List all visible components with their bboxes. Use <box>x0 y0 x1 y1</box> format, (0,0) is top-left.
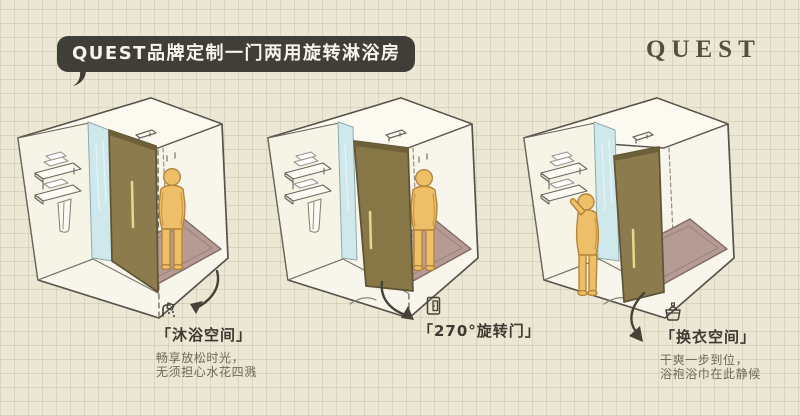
bathing-label-group: 「沐浴空间」 畅享放松时光， 无须担心水花四溅 <box>156 300 257 379</box>
hanging-towel <box>308 199 321 232</box>
door-handle <box>633 230 634 267</box>
dressing-subtitle-line1: 干爽一步到位， <box>660 353 748 367</box>
dressing-subtitle: 干爽一步到位， 浴袍浴巾在此静候 <box>660 353 761 381</box>
basket-icon <box>662 302 684 322</box>
door-icon <box>426 296 442 316</box>
dressing-title: 「换衣空间」 <box>660 326 756 347</box>
back-left-wall <box>18 123 93 280</box>
bathing-subtitle-line2: 无须担心水花四溅 <box>156 365 257 379</box>
dressing-subtitle-line2: 浴袍浴巾在此静候 <box>660 367 761 381</box>
arrow-to-dressing-label <box>618 290 662 348</box>
bathing-subtitle: 畅享放松时光， 无须担心水花四溅 <box>156 351 257 379</box>
bathing-title: 「沐浴空间」 <box>156 324 252 345</box>
bathing-subtitle-line1: 畅享放松时光， <box>156 351 244 365</box>
back-left-wall <box>268 123 343 280</box>
dressing-label-group: 「换衣空间」 干爽一步到位， 浴袍浴巾在此静候 <box>660 302 761 381</box>
shower-icon <box>158 300 178 320</box>
brand-logo: QUEST <box>646 36 761 64</box>
hanging-towel <box>58 199 71 232</box>
door-handle <box>132 182 133 227</box>
door-label-group: 「270°旋转门」 <box>418 296 541 341</box>
door-title: 「270°旋转门」 <box>418 320 541 341</box>
headline-text: QUEST品牌定制一门两用旋转淋浴房 <box>72 43 400 64</box>
door-handle <box>370 212 371 248</box>
headline-badge: QUEST品牌定制一门两用旋转淋浴房 <box>57 36 415 72</box>
badge-speech-tail <box>73 70 89 88</box>
